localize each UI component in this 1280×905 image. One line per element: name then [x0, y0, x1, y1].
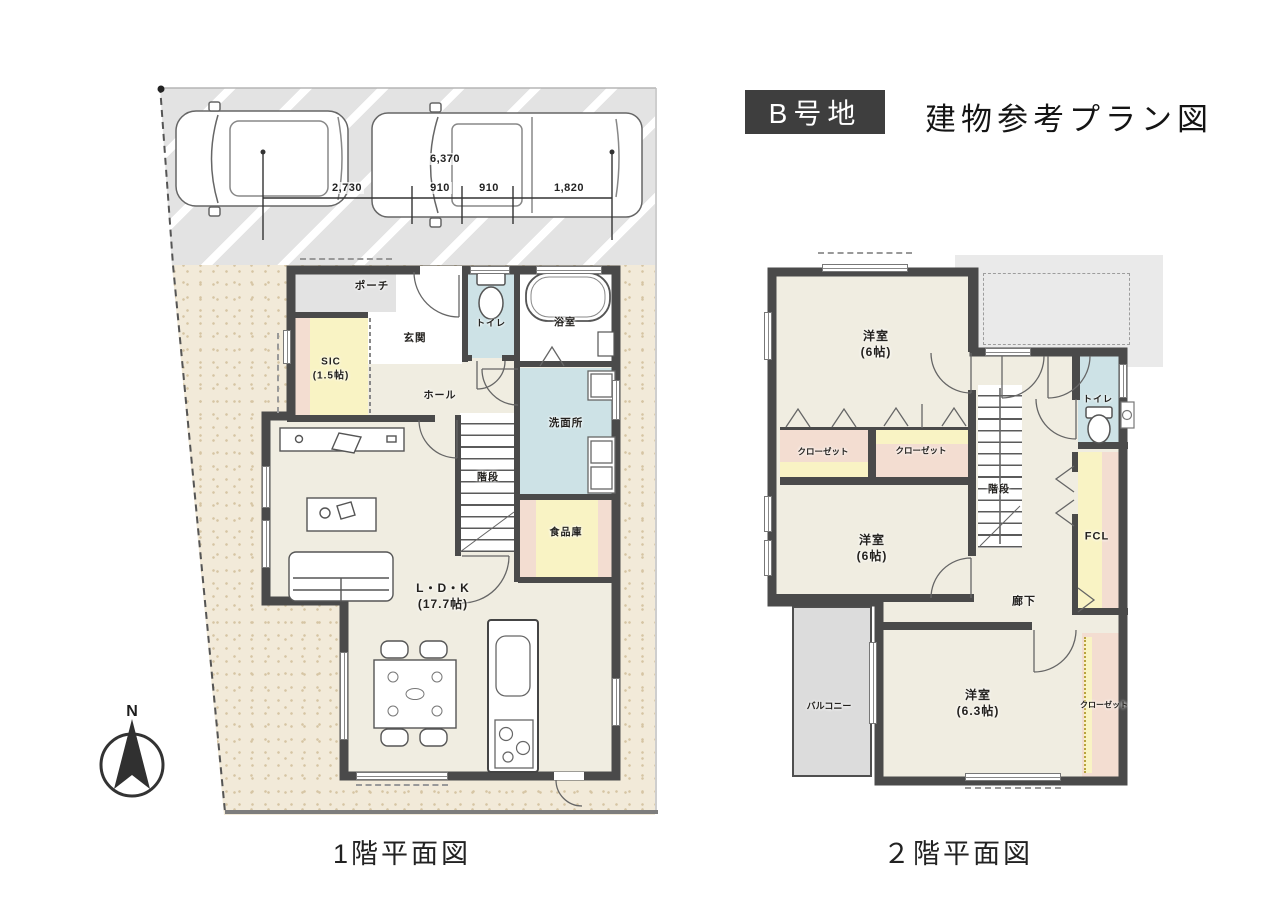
room-label-bedroom1-size: (6帖)	[861, 344, 892, 360]
caption-floor2: ２階平面図	[848, 832, 1068, 871]
room-label-bedroom2: 洋室 (6帖)	[857, 532, 888, 564]
window	[612, 380, 620, 420]
tv-board-icon	[280, 428, 404, 453]
room-label-closet3: クローゼット	[1080, 701, 1128, 712]
window	[764, 312, 772, 360]
window	[965, 773, 1061, 781]
dimension-segment: 910	[477, 182, 501, 194]
toilet-icon	[1086, 407, 1112, 443]
room-label-ldk: L・D・K (17.7帖)	[416, 580, 470, 612]
vanity-icon	[588, 437, 615, 493]
window	[612, 678, 620, 726]
room-label-porch: ポーチ	[355, 279, 390, 293]
room-label-toilet-1f: トイレ	[476, 317, 506, 329]
room-label-balcony: バルコニー	[807, 700, 852, 712]
window	[262, 520, 270, 568]
room-label-ldk-size: (17.7帖)	[416, 596, 470, 612]
room-label-toilet-2f: トイレ	[1083, 393, 1113, 405]
coffee-table-icon	[307, 498, 376, 531]
caption-floor1: 1階平面図	[292, 832, 512, 871]
room-label-bath: 浴室	[554, 316, 576, 330]
compass-north-label: N	[126, 703, 138, 720]
room-label-bedroom2-name: 洋室	[857, 532, 888, 548]
room-label-stairs-2f: 階段	[988, 483, 1010, 497]
room-label-fcl: FCL	[1085, 530, 1109, 545]
room-label-bedroom2-size: (6帖)	[857, 548, 888, 564]
room-label-entrance: 玄関	[404, 331, 427, 345]
room-label-closet1: クローゼット	[797, 446, 848, 457]
window	[764, 496, 772, 532]
compass-icon: N	[101, 703, 163, 796]
room-label-sic-name: SIC	[313, 356, 350, 370]
setback-line	[277, 333, 279, 413]
room-label-closet2: クローゼット	[895, 445, 946, 456]
dimension-segment: 2,730	[330, 182, 364, 194]
window	[536, 266, 602, 274]
room-label-hall: ホール	[424, 389, 457, 403]
room-label-ldk-name: L・D・K	[416, 580, 470, 596]
lot-badge: B号地	[745, 90, 885, 134]
sofa-icon	[289, 552, 393, 601]
door-arcs-2f	[786, 353, 1094, 672]
dimension-segment: 910	[428, 182, 452, 194]
room-label-bedroom3-size: (6.3帖)	[957, 703, 1000, 719]
room-label-sic: SIC (1.5帖)	[313, 356, 350, 383]
window	[356, 772, 448, 780]
window	[262, 466, 270, 508]
room-label-hallway: 廊下	[1012, 595, 1036, 610]
car-icon	[176, 102, 348, 216]
toilet-icon	[477, 273, 505, 319]
window	[340, 652, 348, 740]
balcony-door	[869, 642, 877, 724]
dimension-segment: 1,820	[552, 182, 586, 194]
window-dashed	[818, 252, 912, 254]
door-opening	[554, 772, 584, 780]
room-label-washroom: 洗面所	[549, 416, 584, 430]
dimension-total: 6,370	[428, 153, 462, 165]
bathtub-icon	[526, 273, 614, 356]
window	[822, 264, 908, 272]
window-dashed	[356, 784, 448, 786]
room-label-bedroom3-name: 洋室	[957, 687, 1000, 703]
kitchen-counter-icon	[488, 620, 538, 772]
eave-dashed	[300, 258, 392, 260]
window-dashed	[965, 787, 1061, 789]
page-title: 建物参考プラン図	[925, 94, 1213, 139]
room-label-stairs-1f: 階段	[477, 471, 499, 485]
room-label-pantry: 食品庫	[550, 526, 583, 540]
washer-icon	[588, 371, 615, 400]
room-label-bedroom3: 洋室 (6.3帖)	[957, 687, 1000, 719]
floorplan-sheet: N ポーチ 玄関 トイレ 浴室 SIC (1.5帖) ホール 洗面所 階段 食品…	[0, 0, 1280, 905]
room-label-bedroom1-name: 洋室	[861, 328, 892, 344]
window	[764, 540, 772, 576]
window	[470, 266, 510, 274]
door-opening	[420, 266, 462, 275]
room-label-bedroom1: 洋室 (6帖)	[861, 328, 892, 360]
dining-set-icon	[374, 641, 456, 746]
window	[283, 330, 291, 364]
window	[985, 348, 1031, 356]
vent-fan-icon	[1121, 402, 1134, 428]
window	[1119, 364, 1127, 398]
room-label-sic-size: (1.5帖)	[313, 369, 350, 383]
